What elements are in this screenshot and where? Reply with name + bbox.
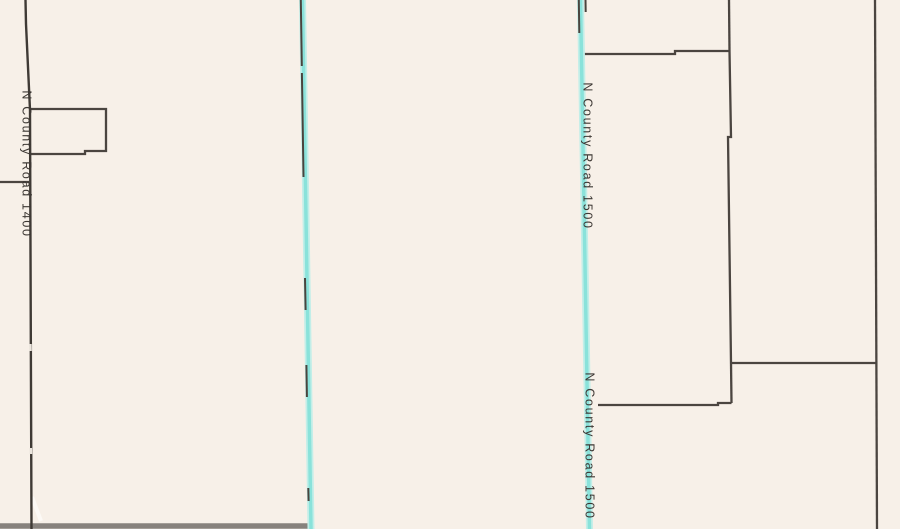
parcel-boundary-topright-vertical-mid: [728, 51, 731, 363]
road-label: N County Road 1500: [583, 372, 597, 519]
parcel-boundary-topright-horizontal: [584, 51, 730, 54]
parcel-dash-middle-road-1: [301, 0, 302, 66]
parcel-outline-west: [30, 109, 106, 154]
parcel-dash-middle-road-4: [306, 365, 307, 397]
parcel-boundary-midright-vertical-short: [731, 363, 732, 403]
parcel-boundary-east-vertical-long: [875, 0, 877, 529]
road-label: N County Road 1400: [20, 90, 34, 237]
parcel-boundary-lowright-horizontal: [598, 403, 732, 405]
parcel-dash-1500-left: [579, 0, 580, 33]
map-svg: N County Road 1400N County Road 1500N Co…: [0, 0, 900, 529]
parcel-dash-middle-road-3: [305, 278, 306, 310]
road-label: N County Road 1500: [581, 82, 595, 229]
road-casing-wedge: [32, 497, 41, 521]
map-viewport[interactable]: N County Road 1400N County Road 1500N Co…: [0, 0, 900, 529]
parcel-boundary-topright-vertical-upper: [729, 0, 730, 51]
